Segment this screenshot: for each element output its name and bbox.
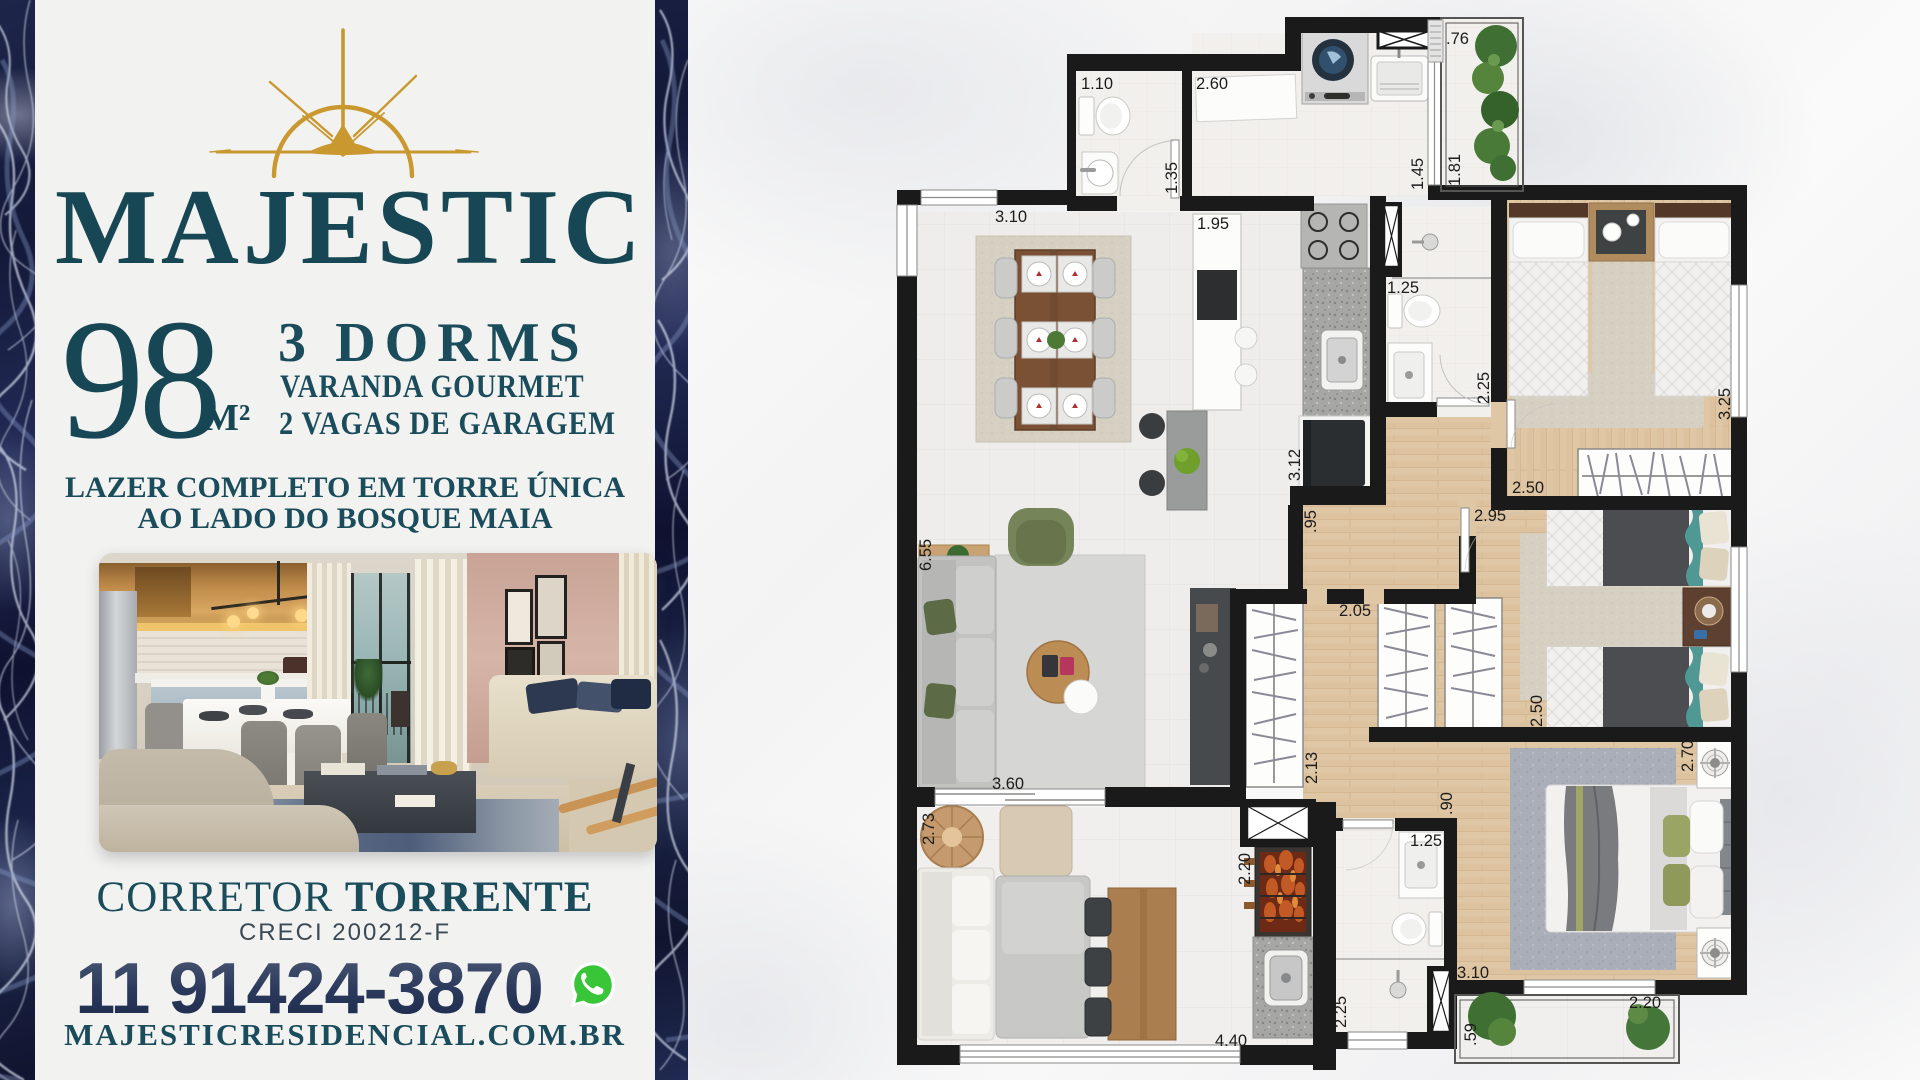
- svg-text:1.10: 1.10: [1081, 75, 1113, 93]
- svg-text:3.10: 3.10: [995, 208, 1027, 226]
- svg-text:1.81: 1.81: [1446, 154, 1464, 186]
- svg-text:2.50: 2.50: [1528, 695, 1546, 727]
- svg-text:1.25: 1.25: [1387, 279, 1419, 297]
- svg-text:3.25: 3.25: [1716, 388, 1734, 420]
- svg-text:.90: .90: [1438, 792, 1456, 815]
- svg-text:3.12: 3.12: [1286, 449, 1304, 481]
- svg-text:2.73: 2.73: [920, 813, 938, 845]
- svg-text:1.25: 1.25: [1410, 832, 1442, 850]
- svg-text:3.60: 3.60: [992, 775, 1024, 793]
- svg-text:.95: .95: [1302, 510, 1320, 533]
- svg-text:.76: .76: [1446, 30, 1469, 48]
- svg-text:2.25: 2.25: [1475, 372, 1493, 404]
- svg-text:2.60: 2.60: [1196, 75, 1228, 93]
- svg-text:3.10: 3.10: [1457, 964, 1489, 982]
- svg-text:2.25: 2.25: [1332, 996, 1350, 1028]
- svg-text:2.20: 2.20: [1236, 853, 1254, 885]
- svg-text:1.95: 1.95: [1197, 215, 1229, 233]
- svg-text:1.45: 1.45: [1409, 158, 1427, 190]
- svg-text:6.55: 6.55: [917, 539, 935, 571]
- svg-text:2.13: 2.13: [1303, 752, 1321, 784]
- svg-text:2.20: 2.20: [1629, 994, 1661, 1012]
- svg-text:2.95: 2.95: [1474, 507, 1506, 525]
- svg-text:1.35: 1.35: [1163, 162, 1181, 194]
- svg-text:.59: .59: [1462, 1023, 1480, 1046]
- svg-text:2.70: 2.70: [1679, 740, 1697, 772]
- svg-text:2.05: 2.05: [1339, 602, 1371, 620]
- svg-text:4.40: 4.40: [1215, 1032, 1247, 1050]
- svg-text:2.50: 2.50: [1512, 479, 1544, 497]
